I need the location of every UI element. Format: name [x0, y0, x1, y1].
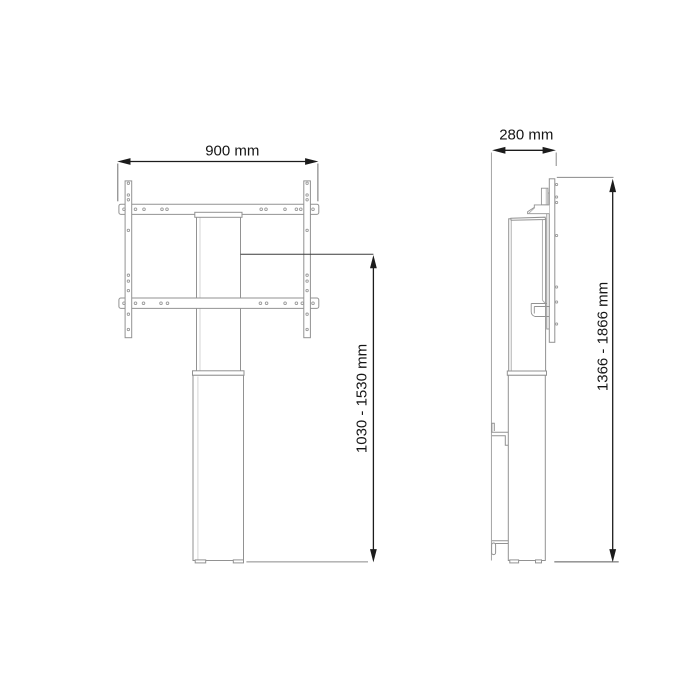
svg-text:280 mm: 280 mm	[499, 127, 553, 144]
svg-text:1030 - 1530 mm: 1030 - 1530 mm	[353, 344, 370, 453]
svg-text:900 mm: 900 mm	[205, 143, 259, 160]
svg-text:1366 - 1866 mm: 1366 - 1866 mm	[594, 282, 611, 391]
